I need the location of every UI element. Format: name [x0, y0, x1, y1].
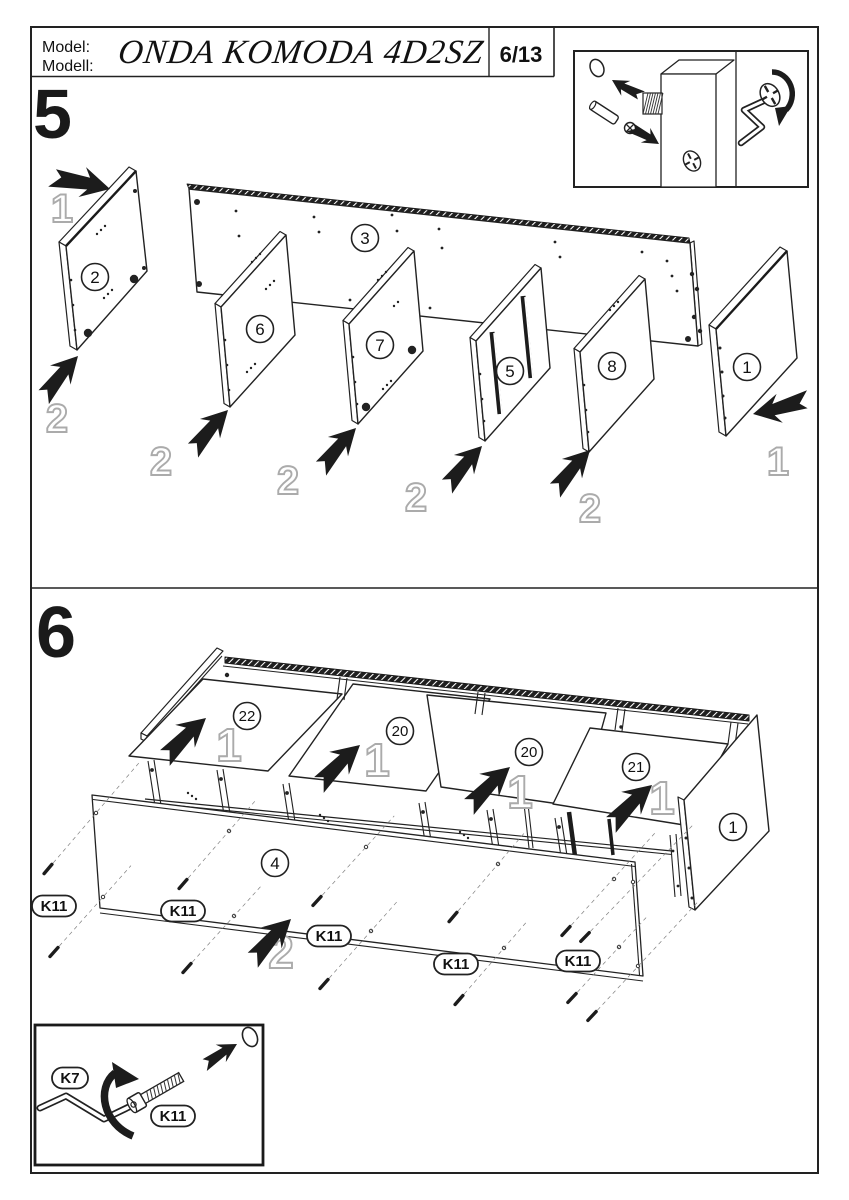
svg-text:5: 5 — [33, 75, 72, 153]
svg-text:1: 1 — [507, 766, 533, 818]
svg-text:K11: K11 — [160, 1108, 187, 1125]
svg-text:K11: K11 — [316, 928, 343, 945]
svg-text:6: 6 — [36, 593, 76, 673]
svg-text:2: 2 — [405, 476, 427, 520]
svg-text:2: 2 — [579, 487, 601, 531]
svg-text:K11: K11 — [41, 898, 68, 915]
svg-text:K11: K11 — [443, 956, 470, 973]
svg-text:K11: K11 — [565, 953, 592, 970]
svg-text:6: 6 — [255, 320, 264, 339]
svg-text:7: 7 — [375, 336, 384, 355]
svg-text:2: 2 — [150, 440, 172, 484]
svg-text:6/13: 6/13 — [500, 42, 543, 67]
svg-text:4: 4 — [270, 854, 279, 873]
svg-text:3: 3 — [360, 229, 369, 248]
svg-text:21: 21 — [628, 759, 645, 776]
svg-text:K11: K11 — [170, 903, 197, 920]
svg-text:1: 1 — [216, 719, 242, 771]
svg-text:8: 8 — [607, 357, 616, 376]
svg-text:1: 1 — [649, 772, 675, 824]
svg-text:1: 1 — [728, 818, 737, 837]
svg-text:ONDA KOMODA 4D2SZ: ONDA KOMODA 4D2SZ — [116, 34, 486, 71]
svg-text:1: 1 — [364, 734, 390, 786]
svg-text:2: 2 — [46, 397, 68, 441]
svg-text:Model:: Model: — [42, 39, 90, 56]
svg-text:20: 20 — [521, 744, 538, 761]
svg-text:1: 1 — [742, 358, 751, 377]
svg-text:K7: K7 — [60, 1070, 79, 1087]
svg-text:20: 20 — [392, 723, 409, 740]
svg-text:2: 2 — [90, 268, 99, 287]
svg-text:2: 2 — [277, 459, 299, 503]
svg-text:Modell:: Modell: — [42, 58, 94, 75]
svg-text:1: 1 — [51, 187, 73, 231]
svg-text:5: 5 — [505, 362, 514, 381]
svg-text:1: 1 — [767, 440, 789, 484]
